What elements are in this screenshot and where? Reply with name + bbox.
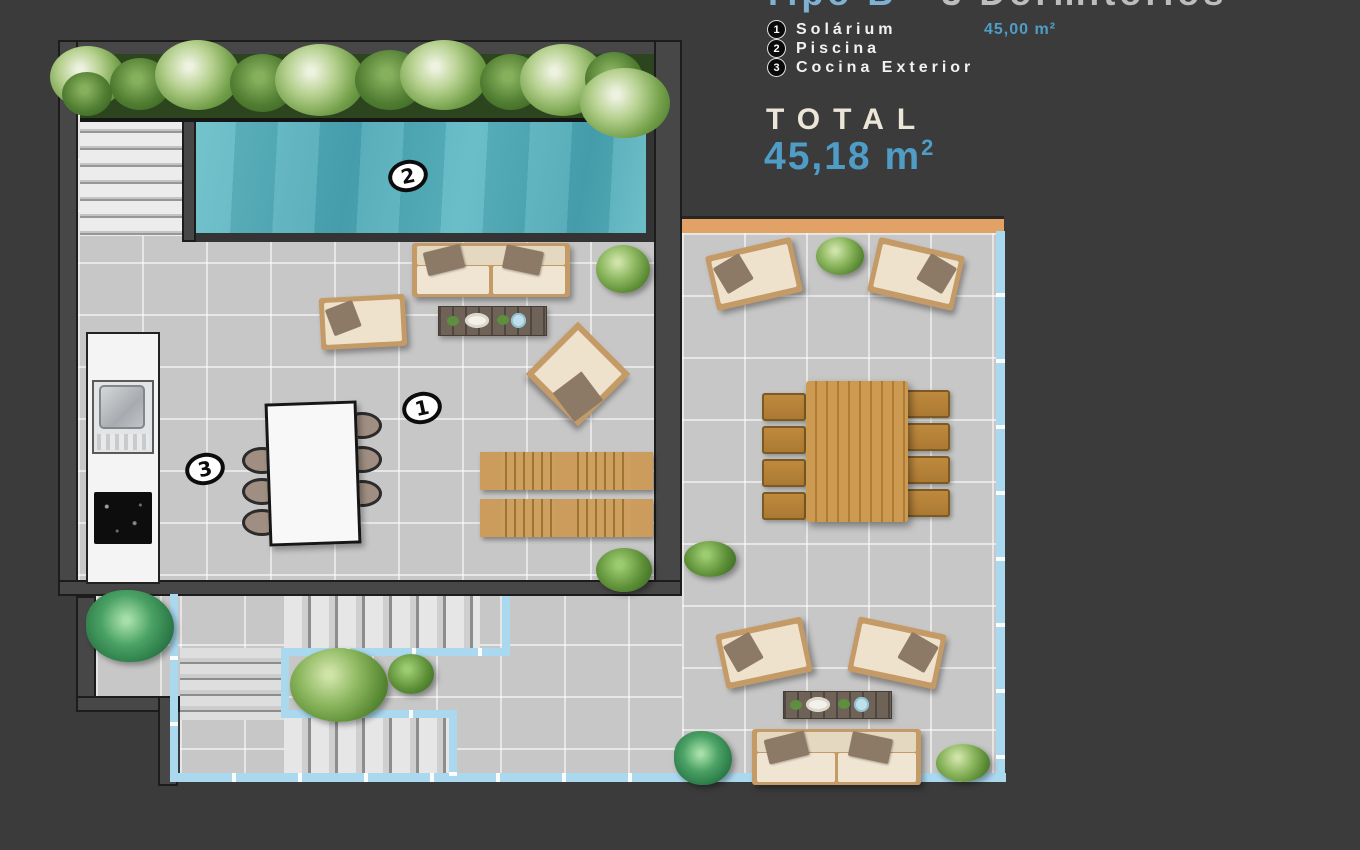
kitchen-sink xyxy=(92,380,154,454)
glass-railing xyxy=(996,231,1005,782)
terrace-chair xyxy=(906,390,950,418)
wall-left xyxy=(58,40,78,596)
terrace-chair xyxy=(906,423,950,451)
bush-icon xyxy=(936,744,990,782)
terrace-chair xyxy=(762,492,806,520)
legend: 1 Solárium 45,00 m² 2 Piscina 3 Cocina E… xyxy=(768,20,1168,77)
total-label: TOTAL xyxy=(766,103,928,137)
stairs-side-steps xyxy=(180,648,284,720)
title-rooms: 3 Dormitorios xyxy=(941,0,1227,13)
hedge-plant-icon xyxy=(275,44,365,116)
hedge-plant-icon xyxy=(62,72,112,116)
sink-basin xyxy=(99,385,145,429)
terrace-chair xyxy=(762,393,806,421)
legend-badge: 2 xyxy=(768,40,785,57)
legend-label: Solárium xyxy=(796,21,896,39)
dining-table xyxy=(265,400,362,546)
sun-lounger xyxy=(480,452,653,490)
palm-plant-icon xyxy=(86,590,174,662)
stairs-upper-flight xyxy=(284,592,480,654)
bush-icon xyxy=(684,541,736,577)
legend-badge: 1 xyxy=(768,21,785,38)
sun-lounger xyxy=(480,499,653,537)
legend-item-cocina: 3 Cocina Exterior xyxy=(768,58,1168,77)
bush-icon xyxy=(388,654,434,694)
sofa xyxy=(752,729,921,785)
pergola-edge xyxy=(682,216,1004,233)
stairs-lower-flight xyxy=(284,712,456,778)
hedge-plant-icon xyxy=(580,68,670,138)
coffee-table xyxy=(783,691,892,719)
palm-plant-icon xyxy=(674,731,732,785)
legend-label: Cocina Exterior xyxy=(796,59,974,77)
outdoor-dining-table xyxy=(806,381,908,522)
title-separator: - xyxy=(911,0,927,13)
sink-drainboard xyxy=(97,434,149,450)
armchair xyxy=(319,294,408,350)
terrace-chair xyxy=(906,456,950,484)
total-value: 45,18 m2 xyxy=(764,135,935,179)
plant-icon xyxy=(596,245,650,293)
hedge-plant-icon xyxy=(155,40,240,110)
terrace-chair xyxy=(762,459,806,487)
glass-railing xyxy=(281,648,289,718)
terrace-chair xyxy=(906,489,950,517)
glass-railing xyxy=(449,710,457,778)
plant-icon xyxy=(816,237,864,275)
legend-area-value: 45,00 m² xyxy=(984,21,1056,39)
hedge-plant-icon xyxy=(400,40,488,110)
plant-icon xyxy=(596,548,652,592)
glass-railing xyxy=(502,596,510,654)
total-unit-sup: 2 xyxy=(921,135,935,160)
legend-item-solarium: 1 Solárium 45,00 m² xyxy=(768,20,1168,39)
legend-item-piscina: 2 Piscina xyxy=(768,39,1168,58)
legend-label: Piscina xyxy=(796,40,880,58)
terrace-chair xyxy=(762,426,806,454)
bush-icon xyxy=(290,648,388,722)
sofa xyxy=(412,243,570,297)
page-title: Tipo B - 3 Dormitorios xyxy=(762,0,1227,14)
floorplan-canvas: 2 1 3 Tipo B - 3 Dormitorios 1 Solárium … xyxy=(0,0,1360,850)
total-number: 45,18 xyxy=(764,135,872,178)
kitchen-grill xyxy=(94,492,152,544)
kitchen-counter xyxy=(86,332,160,584)
title-type: Tipo B xyxy=(762,0,897,13)
coffee-table xyxy=(438,306,547,336)
total-unit: m xyxy=(884,135,921,178)
hedge-planter xyxy=(80,54,654,122)
stairs-top-left xyxy=(80,116,182,236)
legend-badge: 3 xyxy=(768,59,785,76)
wall-pool-divider xyxy=(182,112,196,242)
